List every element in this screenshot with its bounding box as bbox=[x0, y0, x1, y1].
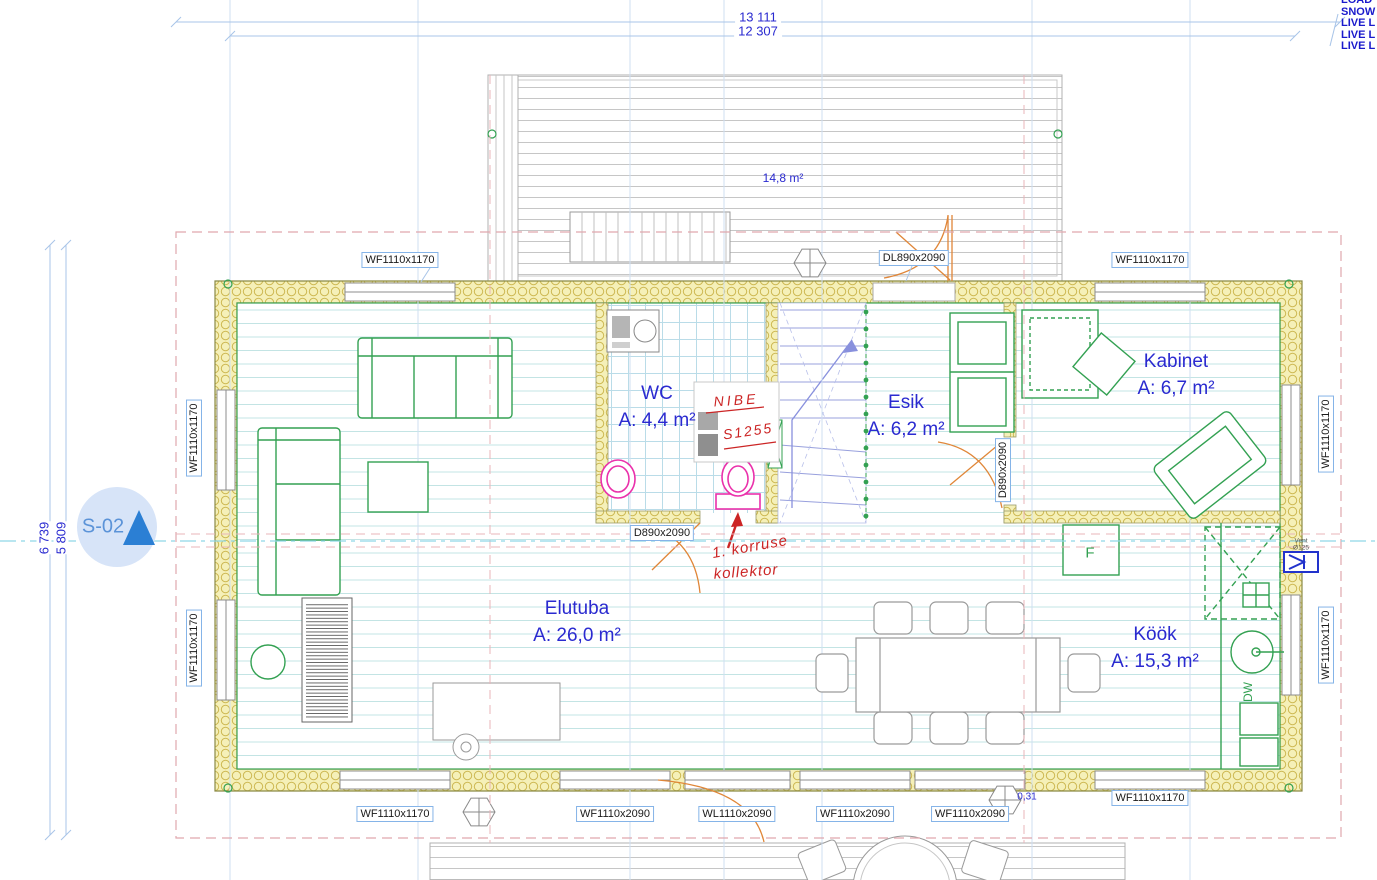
misc-dimension: 0,31 bbox=[1017, 792, 1036, 803]
terrace-table bbox=[570, 212, 730, 262]
dimension-left-outer: 6 739 bbox=[37, 522, 52, 555]
washing-machine bbox=[607, 310, 659, 352]
window-label: WF1110x1170 bbox=[356, 806, 433, 822]
window-label: WF1110x1170 bbox=[1318, 606, 1334, 683]
vent-symbol bbox=[1284, 552, 1318, 572]
dimension-top-inner: 12 307 bbox=[734, 24, 782, 39]
window-label: WF1110x1170 bbox=[1111, 252, 1188, 268]
section-marker-label: S-02 bbox=[82, 516, 124, 539]
fridge-label: F bbox=[1085, 545, 1094, 562]
floorplan-page: 13 111 12 307 6 739 5 809 S-02 LOAD SNOW… bbox=[0, 0, 1377, 880]
room-label-kook: Köök A: 15,3 m² bbox=[1111, 621, 1199, 675]
window-label: WL1110x2090 bbox=[698, 806, 775, 822]
dimension-top-outer: 13 111 bbox=[735, 10, 781, 25]
loads-note-line: LIVE L bbox=[1341, 18, 1377, 30]
room-name: Esik bbox=[867, 389, 944, 416]
floorplan-drawing bbox=[0, 0, 1377, 880]
dishwasher-label: DW bbox=[1241, 682, 1255, 702]
window-label: WF1110x1170 bbox=[1111, 790, 1188, 806]
room-name: Elutuba bbox=[533, 595, 621, 622]
room-area: A: 26,0 m² bbox=[533, 622, 621, 649]
stairs bbox=[778, 303, 868, 523]
dimension-left-inner: 5 809 bbox=[54, 522, 69, 555]
wc-sink bbox=[601, 460, 635, 498]
window-label: WF1110x2090 bbox=[576, 806, 654, 822]
room-label-wc: WC A: 4,4 m² bbox=[618, 380, 695, 434]
window-label: WF1110x1170 bbox=[1318, 395, 1334, 472]
vent-label: Vent Ø125 bbox=[1293, 539, 1309, 552]
room-name: Köök bbox=[1111, 621, 1199, 648]
room-label-elutuba: Elutuba A: 26,0 m² bbox=[533, 595, 621, 649]
sofa bbox=[358, 338, 512, 418]
door-label: DL890x2090 bbox=[879, 250, 949, 266]
window-label: WF1110x1170 bbox=[186, 399, 202, 476]
room-label-kabinet: Kabinet A: 6,7 m² bbox=[1137, 348, 1214, 402]
window-label: WF1110x2090 bbox=[931, 806, 1009, 822]
room-area: A: 4,4 m² bbox=[618, 407, 695, 434]
door-label: D890x2090 bbox=[630, 525, 694, 541]
room-area: A: 6,7 m² bbox=[1137, 375, 1214, 402]
terrace-area-label: 14,8 m² bbox=[763, 171, 804, 185]
window-label: WF1110x1170 bbox=[186, 609, 202, 686]
window-label: WF1110x1170 bbox=[361, 252, 438, 268]
tv-sideboard bbox=[302, 598, 352, 722]
pouf bbox=[251, 645, 285, 679]
corner-sofa bbox=[258, 428, 340, 595]
terrace-step-strip bbox=[488, 75, 518, 281]
room-name: Kabinet bbox=[1137, 348, 1214, 375]
wardrobe bbox=[950, 313, 1014, 432]
corner-cabinet bbox=[1243, 583, 1269, 607]
dining-table bbox=[856, 638, 1060, 712]
room-name: WC bbox=[618, 380, 695, 407]
entrance-door-opening bbox=[873, 283, 955, 301]
room-label-esik: Esik A: 6,2 m² bbox=[867, 389, 944, 443]
room-area: A: 15,3 m² bbox=[1111, 648, 1199, 675]
bottom-terrace bbox=[430, 836, 1125, 880]
loads-note-line: LIVE L bbox=[1341, 41, 1377, 53]
room-area: A: 6,2 m² bbox=[867, 416, 944, 443]
window-label: WF1110x2090 bbox=[816, 806, 894, 822]
coffee-table bbox=[368, 462, 428, 512]
loads-note: LOAD SNOW LIVE L LIVE L LIVE L bbox=[1341, 0, 1377, 53]
vent-label-line: Ø125 bbox=[1293, 545, 1309, 552]
door-label: D890x2090 bbox=[995, 438, 1011, 502]
handwritten-nibe: NIBE bbox=[713, 390, 759, 409]
